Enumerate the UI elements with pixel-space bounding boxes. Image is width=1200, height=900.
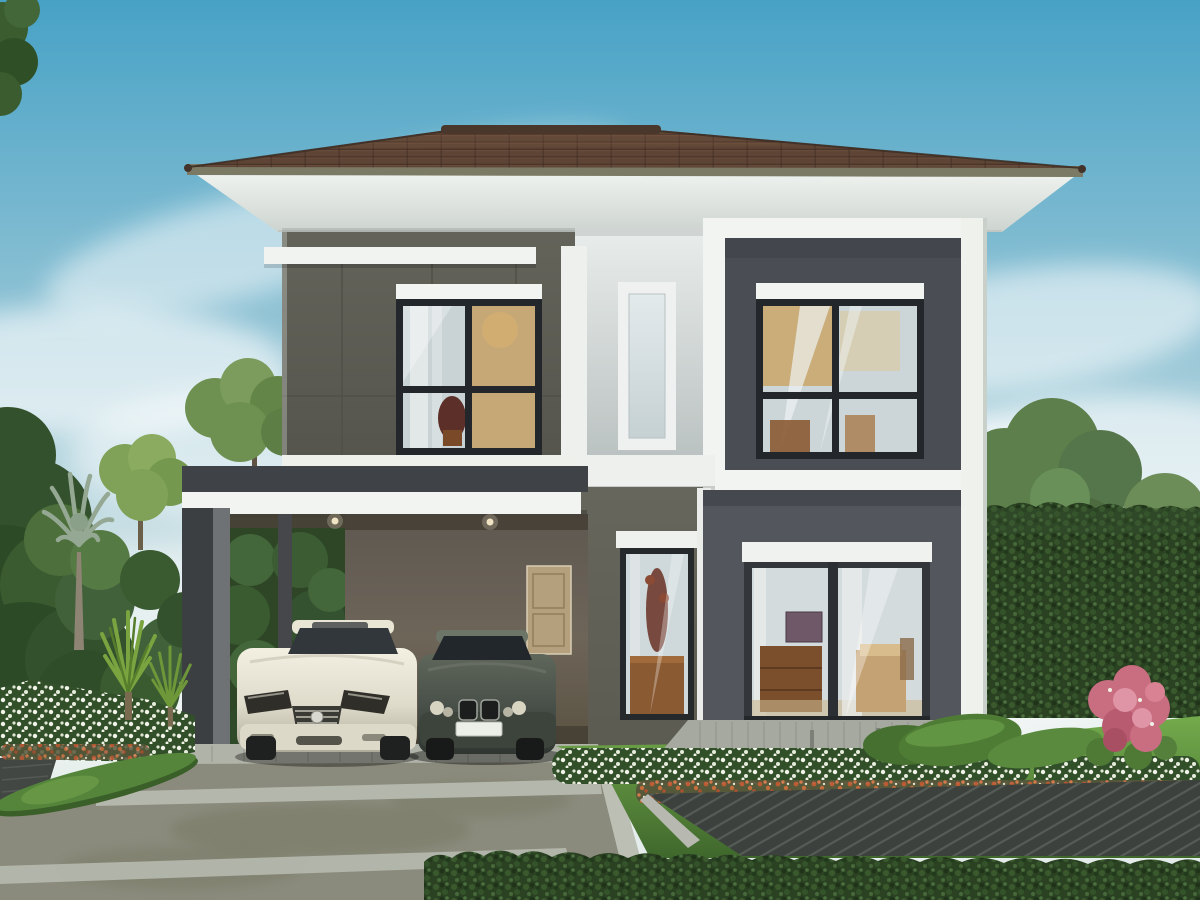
window-glass (626, 554, 688, 714)
carport-fascia (182, 492, 581, 514)
left-red-flower-strip (0, 744, 150, 760)
wheel-right (516, 738, 544, 760)
wall-top-shadow (703, 490, 965, 506)
shade-box (742, 542, 932, 562)
door-stile (828, 562, 838, 722)
panel-top-shadow (725, 238, 963, 258)
windshield (432, 636, 532, 660)
window-glass (763, 306, 917, 452)
ceiling-shadow (345, 514, 588, 530)
white-ledge-bar (264, 247, 536, 264)
carport-rear-door (527, 566, 571, 654)
right-edge-shade (983, 218, 987, 760)
roof-tip-cap-right (1078, 165, 1086, 173)
headlight-left-inner (443, 707, 453, 717)
scene-root (0, 0, 1200, 900)
sliding-door (742, 542, 932, 722)
house-rendering (0, 0, 1200, 900)
shade-box (396, 284, 542, 301)
headlight-right-inner (503, 707, 513, 717)
roof-slab (182, 466, 588, 492)
hedge-wall-face (975, 502, 1200, 718)
ground-right-wall (703, 490, 965, 760)
mullion (832, 306, 839, 452)
mullion (465, 306, 472, 448)
upper-right-window (756, 283, 924, 459)
hedge-wall (975, 502, 1200, 718)
shade-box (756, 283, 924, 301)
wheel-left (426, 738, 454, 760)
shade-box (616, 531, 698, 548)
upper-left-window (394, 284, 544, 460)
roof-tip-cap-left (184, 164, 192, 172)
headlight-right-outer (512, 701, 526, 715)
upper-right-box (703, 218, 985, 494)
white-corner-trim (561, 246, 587, 466)
bumper-intake (296, 736, 342, 745)
license-plate (456, 722, 502, 736)
badge (311, 711, 323, 723)
slit-glass (629, 294, 665, 438)
hedge-highlight (975, 508, 1200, 534)
transom (763, 392, 917, 399)
balcony-ledge (282, 455, 575, 466)
ledge-shadow (264, 264, 536, 268)
grille-kidney-right (481, 700, 499, 720)
grille-kidney-left (459, 700, 477, 720)
wheel-right (380, 736, 410, 760)
transom (403, 386, 535, 393)
centre-mid-band (575, 455, 715, 488)
headlight-left-outer (430, 701, 444, 715)
wheel-left (246, 736, 276, 760)
lower-slit-window (616, 531, 698, 720)
ground-centre-wall (575, 487, 703, 760)
roof-ridge (441, 125, 661, 134)
upper-slit-window (618, 282, 676, 450)
windshield (288, 628, 398, 654)
